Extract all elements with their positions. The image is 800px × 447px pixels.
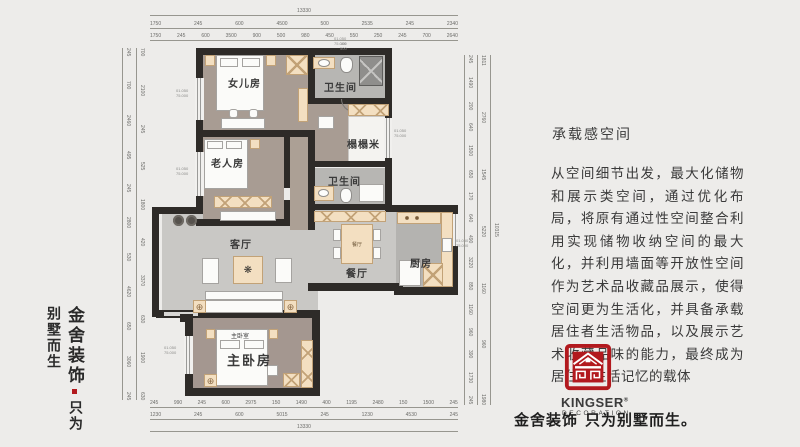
storage-cabinets	[314, 211, 386, 222]
wall	[308, 204, 392, 210]
cabinet-tatami	[318, 116, 334, 129]
tv-cabinet	[220, 211, 276, 221]
dimension-row-top-total: 13330	[150, 8, 458, 16]
floor-plan: ❋ ⊕ ⊕ 餐厅 ⊕ 女儿房 卫生间 榻榻米 老人房 卫生间 客厅 餐厅 厨房 …	[0, 0, 500, 447]
shower-stall	[359, 56, 383, 86]
room-label-tatami: 榻榻米	[347, 136, 380, 151]
wall	[152, 207, 159, 317]
toilet-icon	[340, 188, 352, 203]
pillow	[220, 340, 240, 349]
room-label-living: 客厅	[230, 236, 252, 251]
room-label-daughter: 女儿房	[228, 75, 261, 90]
chair	[249, 109, 258, 118]
window	[195, 152, 204, 196]
chair	[373, 229, 381, 241]
room-label-kitchen: 厨房	[410, 255, 432, 270]
dimension-col-right-mid: 181127601545522011609601980	[477, 55, 486, 405]
desk-daughter	[221, 118, 265, 129]
bed-label-master: 主卧室	[231, 331, 249, 340]
footer-slogan: 只为别墅而生。	[585, 413, 697, 429]
wardrobe-elder	[214, 196, 272, 208]
pillow	[226, 141, 242, 149]
coffee-table: ❋	[233, 256, 263, 284]
logo-wordmark: KINGSER®	[561, 395, 629, 410]
sink-icon	[318, 189, 329, 197]
chair	[229, 109, 238, 118]
dimension-col-left-outer: 2457002460495245280053046206503060245	[122, 48, 131, 400]
stove-burners-icon	[403, 214, 423, 222]
room-label-elder: 老人房	[211, 155, 244, 170]
level-marker: 01.05075.000	[394, 128, 406, 138]
nightstand	[250, 139, 260, 149]
closet-tatami	[348, 104, 389, 116]
sink-icon	[318, 59, 330, 67]
dimension-row-bottom-total: 13330	[150, 424, 458, 432]
wall	[284, 130, 290, 188]
level-marker: 01.05075.000	[176, 166, 188, 176]
pillow	[220, 58, 238, 67]
wall	[196, 130, 315, 137]
sofa-seat	[205, 300, 283, 313]
dimension-col-right-inner: 2451490200640150065017064049032208501160…	[464, 55, 473, 405]
dimension-row-bottom-2: 1230245600501524512304530245	[150, 412, 458, 420]
armchair	[202, 258, 219, 284]
sofa-side-table: ⊕	[193, 300, 206, 313]
wall	[308, 48, 315, 100]
kitchen-sink	[442, 238, 452, 252]
nightstand	[266, 55, 276, 66]
corner-table: ⊕	[204, 374, 217, 387]
window	[195, 78, 204, 120]
sofa-back	[205, 291, 283, 300]
room-label-master: 主卧房	[227, 350, 272, 369]
pillow	[207, 141, 223, 149]
footer-brand: 金舍装饰	[514, 413, 578, 429]
room-label-bath1: 卫生间	[324, 79, 357, 94]
wall	[389, 205, 458, 212]
cabinet-master	[283, 373, 300, 387]
nightstand	[206, 329, 215, 339]
wall	[308, 161, 392, 167]
registered-mark: ®	[624, 398, 629, 404]
dimension-row-top-3: 1750245600350090050098045055025024570026…	[150, 33, 458, 41]
wall	[312, 310, 320, 396]
shower-bath2	[359, 184, 384, 202]
wall	[152, 207, 203, 214]
dimension-row-top-2: 1750245600450050025352452340	[150, 21, 458, 29]
chair	[373, 247, 381, 259]
level-marker: 01.05075.000	[164, 345, 176, 355]
pillow	[244, 340, 264, 349]
window	[184, 336, 193, 374]
level-marker: 01.05075.000	[176, 88, 188, 98]
dimension-extra: 100500	[340, 41, 347, 51]
wall	[308, 283, 403, 291]
floor-hall	[290, 137, 310, 230]
side-rug	[275, 258, 292, 283]
window	[384, 118, 392, 158]
pillow	[242, 58, 260, 67]
toilet-icon	[340, 57, 353, 73]
dimension-row-bottom-1: 2459902456002975150149040011952480150150…	[150, 400, 458, 408]
dining-table: 餐厅	[341, 224, 373, 264]
wardrobe-daughter	[286, 55, 308, 75]
wall	[196, 48, 391, 55]
sofa-side-table: ⊕	[284, 300, 297, 313]
cabinet	[298, 88, 308, 122]
wardrobe-master	[301, 340, 313, 388]
dimension-col-left-inner: 7002100245525180042033706301900630	[136, 48, 145, 400]
kingser-logo-icon	[564, 344, 612, 394]
decor-fan-icon	[173, 215, 184, 226]
wall	[185, 388, 320, 396]
decor-fan-icon	[186, 215, 197, 226]
article-title: 承载感空间	[552, 124, 632, 144]
room-label-dining: 餐厅	[346, 265, 368, 280]
chair	[333, 247, 341, 259]
room-label-bath2: 卫生间	[328, 173, 361, 188]
nightstand	[269, 329, 278, 339]
dimension-col-right-total: 10315	[490, 55, 499, 405]
nightstand	[205, 55, 215, 66]
wall	[394, 287, 458, 295]
chair	[333, 229, 341, 241]
dining-table-label: 餐厅	[352, 242, 362, 248]
footer-tagline: 金舍装饰只为别墅而生。	[514, 409, 697, 430]
